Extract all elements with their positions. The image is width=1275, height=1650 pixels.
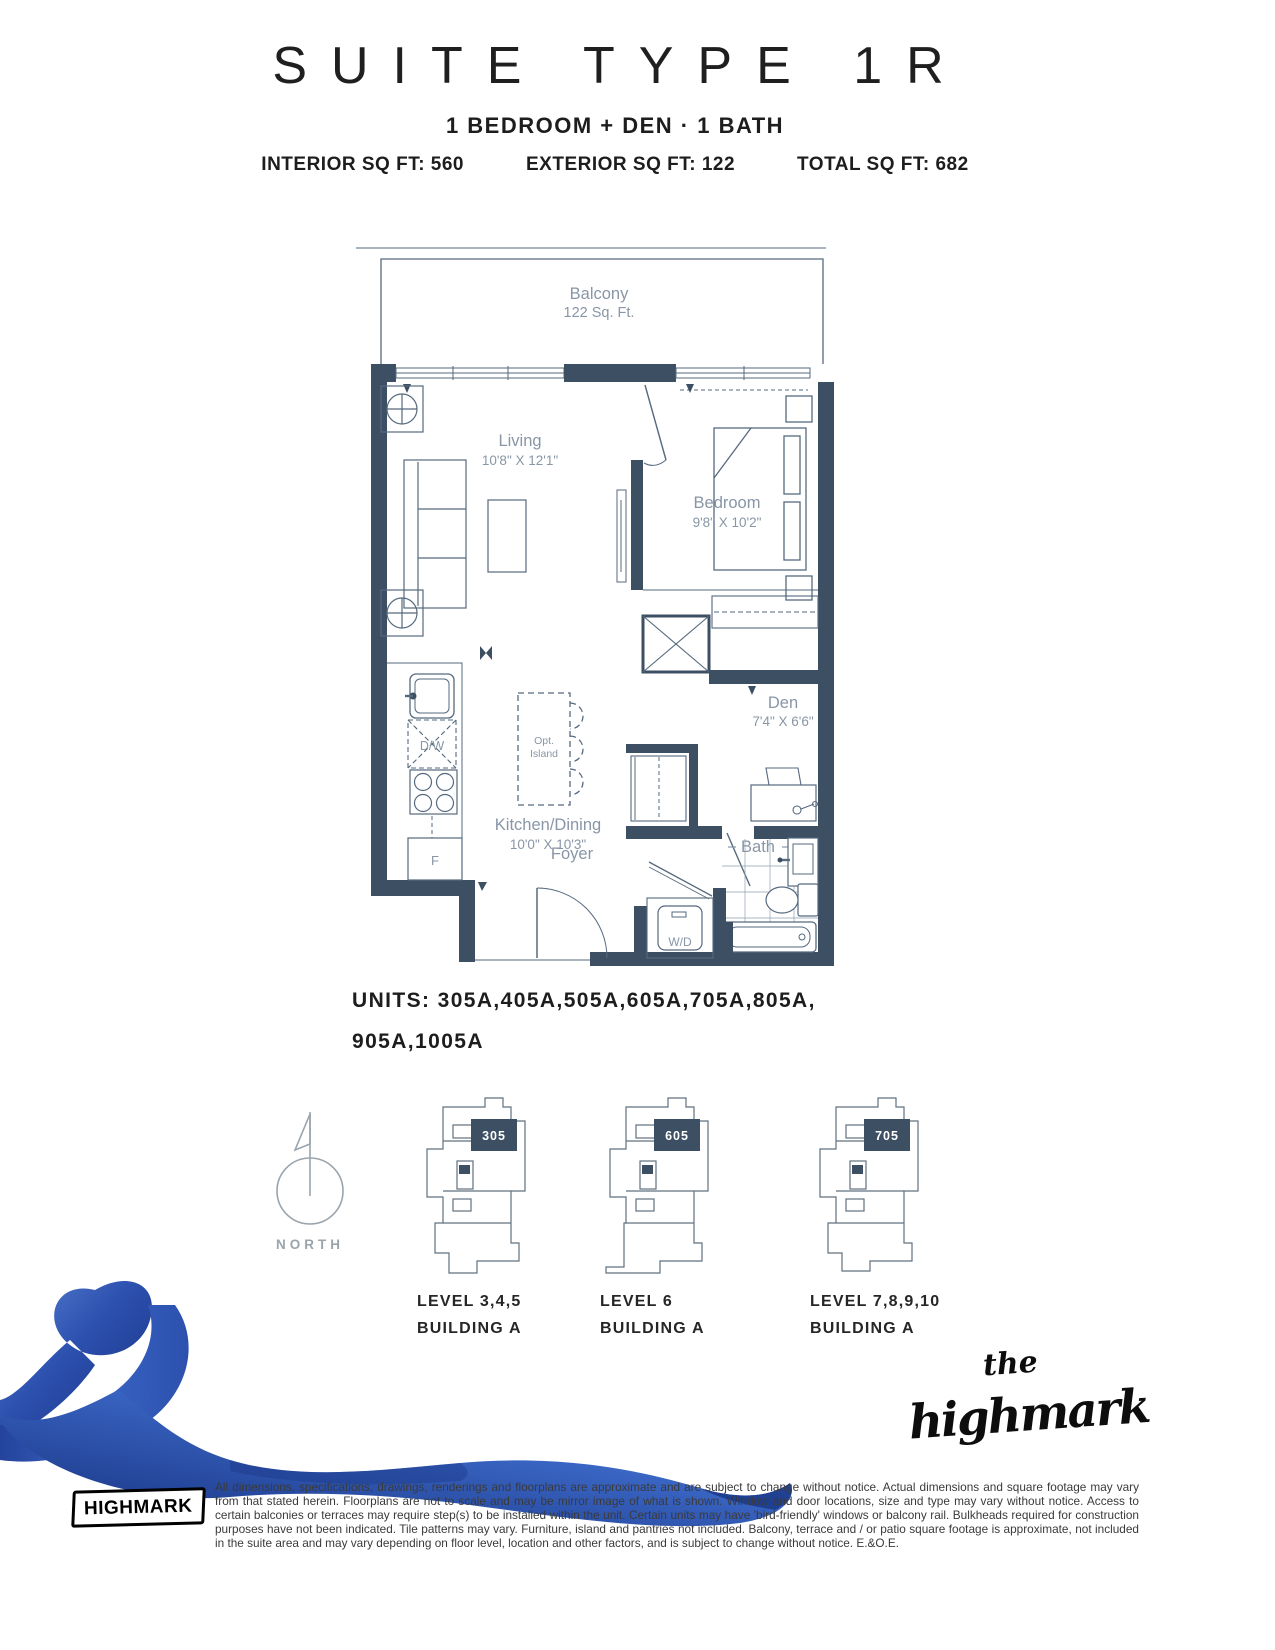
column-symbol — [381, 386, 423, 432]
bedroom-label: Bedroom — [694, 494, 761, 512]
window-tick — [403, 384, 411, 393]
bedroom-closet — [712, 596, 818, 628]
bathtub — [722, 922, 816, 952]
bedroom-size: 9'8" X 10'2" — [693, 515, 762, 530]
den-closet — [626, 744, 698, 826]
wall-segment — [564, 364, 676, 382]
island-label-1: Opt. — [534, 735, 554, 747]
dishwasher-label: D/W — [420, 739, 445, 753]
floorplan-sheet: SUITE TYPE 1R 1 BEDROOM + DEN · 1 BATH I… — [0, 0, 1275, 1650]
keyplan-level: LEVEL 7,8,9,10 — [810, 1288, 940, 1315]
window-band-left — [396, 366, 564, 380]
page-title: SUITE TYPE 1R — [0, 36, 1240, 96]
sofa — [404, 460, 466, 608]
interior-sqft: INTERIOR SQ FT: 560 — [261, 154, 464, 176]
exterior-wall-right — [818, 382, 834, 966]
coffee-table — [488, 500, 526, 572]
living-size: 10'8" X 12'1" — [482, 453, 559, 468]
column-symbol — [381, 590, 423, 636]
window-tick — [686, 384, 694, 393]
entry-door — [537, 888, 607, 958]
units-line-1: UNITS: 305A,405A,505A,605A,705A,805A, — [352, 980, 816, 1021]
toilet — [766, 884, 818, 916]
exterior-wall-left — [371, 364, 387, 896]
bath-wall — [626, 826, 722, 839]
keyplan-badge-label: 705 — [875, 1129, 899, 1143]
north-arrow: NORTH — [256, 1106, 366, 1256]
island-label-2: Island — [530, 748, 558, 760]
total-sqft: TOTAL SQ FT: 682 — [797, 154, 969, 176]
counter-edge — [387, 663, 462, 880]
balcony-label: Balcony — [570, 285, 629, 303]
dimension-marker — [480, 646, 492, 660]
living-label: Living — [498, 432, 541, 450]
exterior-wall-bottom — [590, 952, 830, 966]
bath-vanity — [778, 838, 819, 886]
door-tick — [478, 882, 487, 891]
den-size: 7'4" X 6'6" — [752, 714, 813, 729]
square-footage-stats: INTERIOR SQ FT: 560 EXTERIOR SQ FT: 122 … — [0, 154, 1230, 176]
script-logo-the: the — [982, 1345, 1039, 1384]
den-label: Den — [768, 694, 798, 712]
units-line-2: 905A,1005A — [352, 1021, 816, 1062]
keyplan-705: 705 — [806, 1093, 926, 1283]
foyer-label: Foyer — [551, 845, 594, 863]
bath-label: Bath — [741, 838, 775, 856]
the-highmark-script-logo: the highmark — [905, 1330, 1160, 1455]
kitchen-label: Kitchen/Dining — [495, 816, 601, 834]
den-north-wall — [709, 670, 818, 684]
wall-segment — [371, 880, 475, 896]
wall-segment — [459, 896, 475, 962]
highmark-stamp-text: HIGHMARK — [84, 1496, 193, 1521]
script-logo-highmark: highmark — [907, 1379, 1151, 1451]
den-desk — [751, 768, 818, 821]
bedroom-wall — [631, 460, 643, 590]
shaft-column — [643, 616, 709, 672]
keyplan-badge-label: 605 — [665, 1129, 689, 1143]
exterior-sqft: EXTERIOR SQ FT: 122 — [526, 154, 735, 176]
bedroom-door-leaf — [645, 385, 666, 460]
bedroom-door-swing — [644, 460, 666, 465]
fridge-label: F — [431, 853, 439, 868]
keyplan-badge-label: 305 — [482, 1129, 506, 1143]
floorplan-drawing: Balcony 122 Sq. Ft. — [350, 238, 842, 974]
kitchen-sink — [405, 674, 454, 718]
cooktop — [410, 770, 457, 814]
tv-panel — [617, 490, 626, 582]
suite-configuration: 1 BEDROOM + DEN · 1 BATH — [0, 113, 1230, 139]
highmark-stamp-logo: HIGHMARK — [71, 1487, 205, 1528]
units-list: UNITS: 305A,405A,505A,605A,705A,805A, 90… — [352, 980, 816, 1062]
door-tick — [748, 686, 756, 695]
balcony-size: 122 Sq. Ft. — [564, 305, 635, 321]
legal-disclaimer: All dimensions, specifications, drawings… — [215, 1481, 1139, 1551]
laundry-label: W/D — [668, 935, 692, 949]
window-band-right — [676, 366, 810, 380]
